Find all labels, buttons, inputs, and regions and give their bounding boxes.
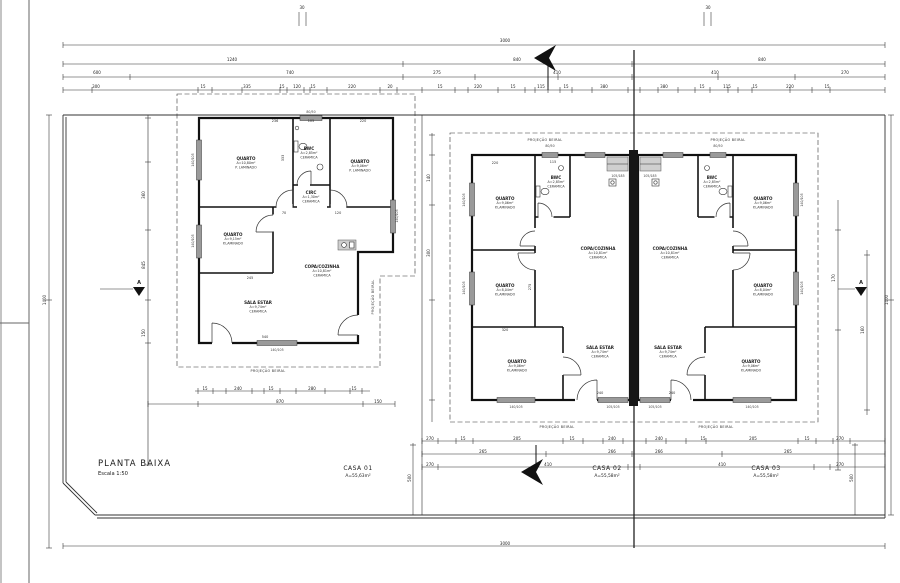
window-tag: 140/105 (191, 234, 195, 247)
dim-label: 275 (528, 284, 532, 290)
dim-label: 15 (569, 436, 575, 441)
dim-label: 410 (553, 70, 561, 75)
room-label: QUARTOA=9,06m²P.LAMINADO (753, 196, 774, 209)
section-marker-left: A (100, 280, 145, 296)
dim-label: 265 (784, 449, 792, 454)
window-tag: 80/50 (545, 144, 554, 148)
window-tag: 140/105 (191, 153, 195, 166)
casa-01-plan (197, 116, 396, 347)
room-label: SALA ESTARA=9,74m²CERAMICA (654, 345, 683, 358)
eave-label: PROJEÇÃO BEIRAL (370, 280, 375, 315)
window-tag: 105/105 (648, 405, 661, 409)
window-tag: 140/105 (395, 209, 399, 222)
dim-label: 220 (360, 119, 366, 123)
dim-label: 15 (460, 436, 466, 441)
dim-label: 15 (563, 84, 569, 89)
dim-label: 270 (836, 462, 844, 467)
dim-label: 120 (335, 211, 341, 215)
page-title: PLANTA BAIXA (98, 459, 171, 469)
dim-label: 500 (407, 474, 412, 482)
room-label: COPA/COZINHAA=10,81m²CERAMICA (581, 246, 617, 259)
dim-label: 115 (550, 160, 556, 164)
dim-label: 320 (502, 328, 508, 332)
casa-03-plan (638, 153, 799, 404)
room-label: QUARTOA=9,06m²P.LAMINADO (741, 359, 762, 372)
dim-label: 300 (426, 249, 431, 257)
dim-label: 20 (387, 84, 393, 89)
door-arcs (212, 171, 358, 343)
dim-label: 15 (804, 436, 810, 441)
dim-label: 270 (426, 436, 434, 441)
room-label: QUARTOA=9,06m²P.LAMINADO (495, 196, 516, 209)
casa-03-area: A=55,58m² (753, 473, 779, 479)
dim-label: 840 (513, 57, 521, 62)
dim-label: 275 (433, 70, 441, 75)
dim-label: 15 (824, 84, 830, 89)
casa-03-name: CASA 03 (751, 465, 780, 472)
dim-label: 270 (841, 70, 849, 75)
dim-label: 240 (597, 391, 603, 395)
section-letter: A (859, 280, 863, 286)
dim-label: 1240 (227, 57, 238, 62)
shared-wall (629, 150, 638, 406)
casa-01-name: CASA 01 (343, 465, 372, 472)
dim-label: 15 (202, 386, 208, 391)
room-labels: QUARTOA=10,80m²P. LAMINADOBWCA=2,85m²CER… (223, 146, 774, 372)
dim-label: 266 (608, 449, 616, 454)
dim-label: 240 (669, 391, 675, 395)
scale-label: Escala 1:50 (98, 471, 128, 477)
window-tag: 105/105 (606, 405, 619, 409)
dim-label: 220 (474, 84, 482, 89)
window-tag: 140/105 (800, 193, 804, 206)
window-tag: 140/105 (462, 281, 466, 294)
dim-label: 600 (93, 70, 101, 75)
dim-label: 220 (348, 84, 356, 89)
dim-label: 15 (700, 436, 706, 441)
window-tag: 105/185 (611, 174, 624, 178)
room-label: CIRCA=1,30m²CERAMICA (302, 190, 320, 203)
window-tag: 140/105 (745, 405, 758, 409)
eave-label: PROJEÇÃO BEIRAL (528, 137, 563, 142)
window-tag: 140/105 (270, 348, 283, 352)
dim-label: 380 (600, 84, 608, 89)
casa-02-name: CASA 02 (592, 465, 621, 472)
dim-label: 205 (749, 436, 757, 441)
dim-label: 240 (608, 436, 616, 441)
casa-01-area: A=55,63m² (345, 473, 371, 479)
dim-label: 30 (299, 5, 305, 10)
title-block: PLANTA BAIXA Escala 1:50 (98, 459, 171, 477)
dim-label: 410 (711, 70, 719, 75)
dim-label: 266 (655, 449, 663, 454)
eave-label: PROJEÇÃO BEIRAL (540, 424, 575, 429)
room-label: SALA ESTARA=9,74m²CERAMICA (244, 300, 273, 313)
window-tag: 80/50 (713, 144, 722, 148)
room-label: QUARTOA=9,06m²P. LAMINADO (349, 159, 371, 172)
section-marker-right: A (838, 280, 867, 296)
dim-label: 15 (437, 84, 443, 89)
dim-label: 115 (723, 84, 731, 89)
eave-label: PROJEÇÃO BEIRAL (711, 137, 746, 142)
dim-label: 140 (426, 174, 431, 182)
dim-label: 30 (705, 5, 711, 10)
room-label: COPA/COZINHAA=10,81m²CERAMICA (653, 246, 689, 259)
dim-label: 15 (279, 84, 285, 89)
eave-label: PROJEÇÃO BEIRAL (699, 424, 734, 429)
dim-label: 1400 (884, 294, 889, 305)
dim-label: 170 (831, 274, 836, 282)
dim-label: 205 (513, 436, 521, 441)
dim-label: 3000 (500, 38, 511, 43)
dim-label: 15 (699, 84, 705, 89)
dim-label: 240 (655, 436, 663, 441)
north-arrow-bottom (521, 445, 543, 485)
dim-label: 500 (849, 474, 854, 482)
window-tag: 140/105 (462, 193, 466, 206)
kitchen-counter (338, 240, 356, 250)
dim-label: 70 (282, 211, 286, 215)
room-label: BWCA=2,85m²CERAMICA (547, 175, 565, 188)
dim-label: 540 (262, 335, 268, 339)
dim-label: 245 (247, 276, 253, 280)
dim-label: 280 (308, 386, 316, 391)
dim-label: 15 (510, 84, 516, 89)
dim-label: 1400 (42, 294, 47, 305)
dim-label: 220 (786, 84, 794, 89)
dim-label: 15 (310, 84, 316, 89)
dim-label: 15 (752, 84, 758, 89)
room-label: QUARTOA=9,15m²P.LAMINADO (223, 232, 244, 245)
dim-label: 160 (860, 326, 865, 334)
dim-label: 360 (141, 191, 146, 199)
casa-02-plan (470, 153, 631, 404)
dim-label: 150 (374, 399, 382, 404)
dim-label: 333 (281, 155, 285, 161)
dim-label: 845 (141, 261, 146, 269)
dim-label: 740 (286, 70, 294, 75)
floor-plan-canvas: A A PROJEÇÃO BEIRAL PROJEÇÃO BEIRAL PROJ… (0, 0, 900, 583)
room-label: QUARTOA=8,04m²P.LAMINADO (495, 283, 516, 296)
drawing-sheet: A A PROJEÇÃO BEIRAL PROJEÇÃO BEIRAL PROJ… (0, 0, 900, 583)
dim-label: 410 (718, 462, 726, 467)
room-label: QUARTOA=10,80m²P. LAMINADO (235, 156, 257, 169)
dim-label: 15 (200, 84, 206, 89)
dim-label: 270 (836, 436, 844, 441)
dim-label: 300 (92, 84, 100, 89)
dim-label: 105 (308, 119, 314, 123)
casa-02-area: A=55,58m² (594, 473, 620, 479)
dim-label: 15 (351, 386, 357, 391)
dim-label: 3000 (500, 541, 511, 546)
dim-label: 335 (243, 84, 251, 89)
dim-label: 15 (268, 386, 274, 391)
dim-label: 236 (272, 119, 278, 123)
window-tag: 80/50 (306, 110, 315, 114)
window-tag: 140/105 (800, 281, 804, 294)
dim-label: 410 (544, 462, 552, 467)
dim-label: 240 (234, 386, 242, 391)
room-label: QUARTOA=9,06m²P.LAMINADO (507, 359, 528, 372)
eave-label: PROJEÇÃO BEIRAL (251, 368, 286, 373)
room-label: BWCA=2,85m²CERAMICA (300, 146, 318, 159)
window-tag: 105/185 (643, 174, 656, 178)
dim-label: 150 (141, 329, 146, 337)
dim-label: 265 (479, 449, 487, 454)
dim-label: 115 (537, 84, 545, 89)
room-label: COPA/COZINHAA=10,81m²CERAMICA (305, 264, 341, 277)
dim-label: 120 (293, 84, 301, 89)
dim-label: 220 (492, 161, 498, 165)
room-label: QUARTOA=8,04m²P.LAMINADO (753, 283, 774, 296)
room-label: SALA ESTARA=9,74m²CERAMICA (586, 345, 615, 358)
dim-label: 380 (660, 84, 668, 89)
room-label: BWCA=2,85m²CERAMICA (703, 175, 721, 188)
section-letter: A (137, 280, 141, 286)
dim-label: 870 (276, 399, 284, 404)
dim-label: 270 (426, 462, 434, 467)
window-tag: 140/105 (509, 405, 522, 409)
dim-label: 840 (758, 57, 766, 62)
